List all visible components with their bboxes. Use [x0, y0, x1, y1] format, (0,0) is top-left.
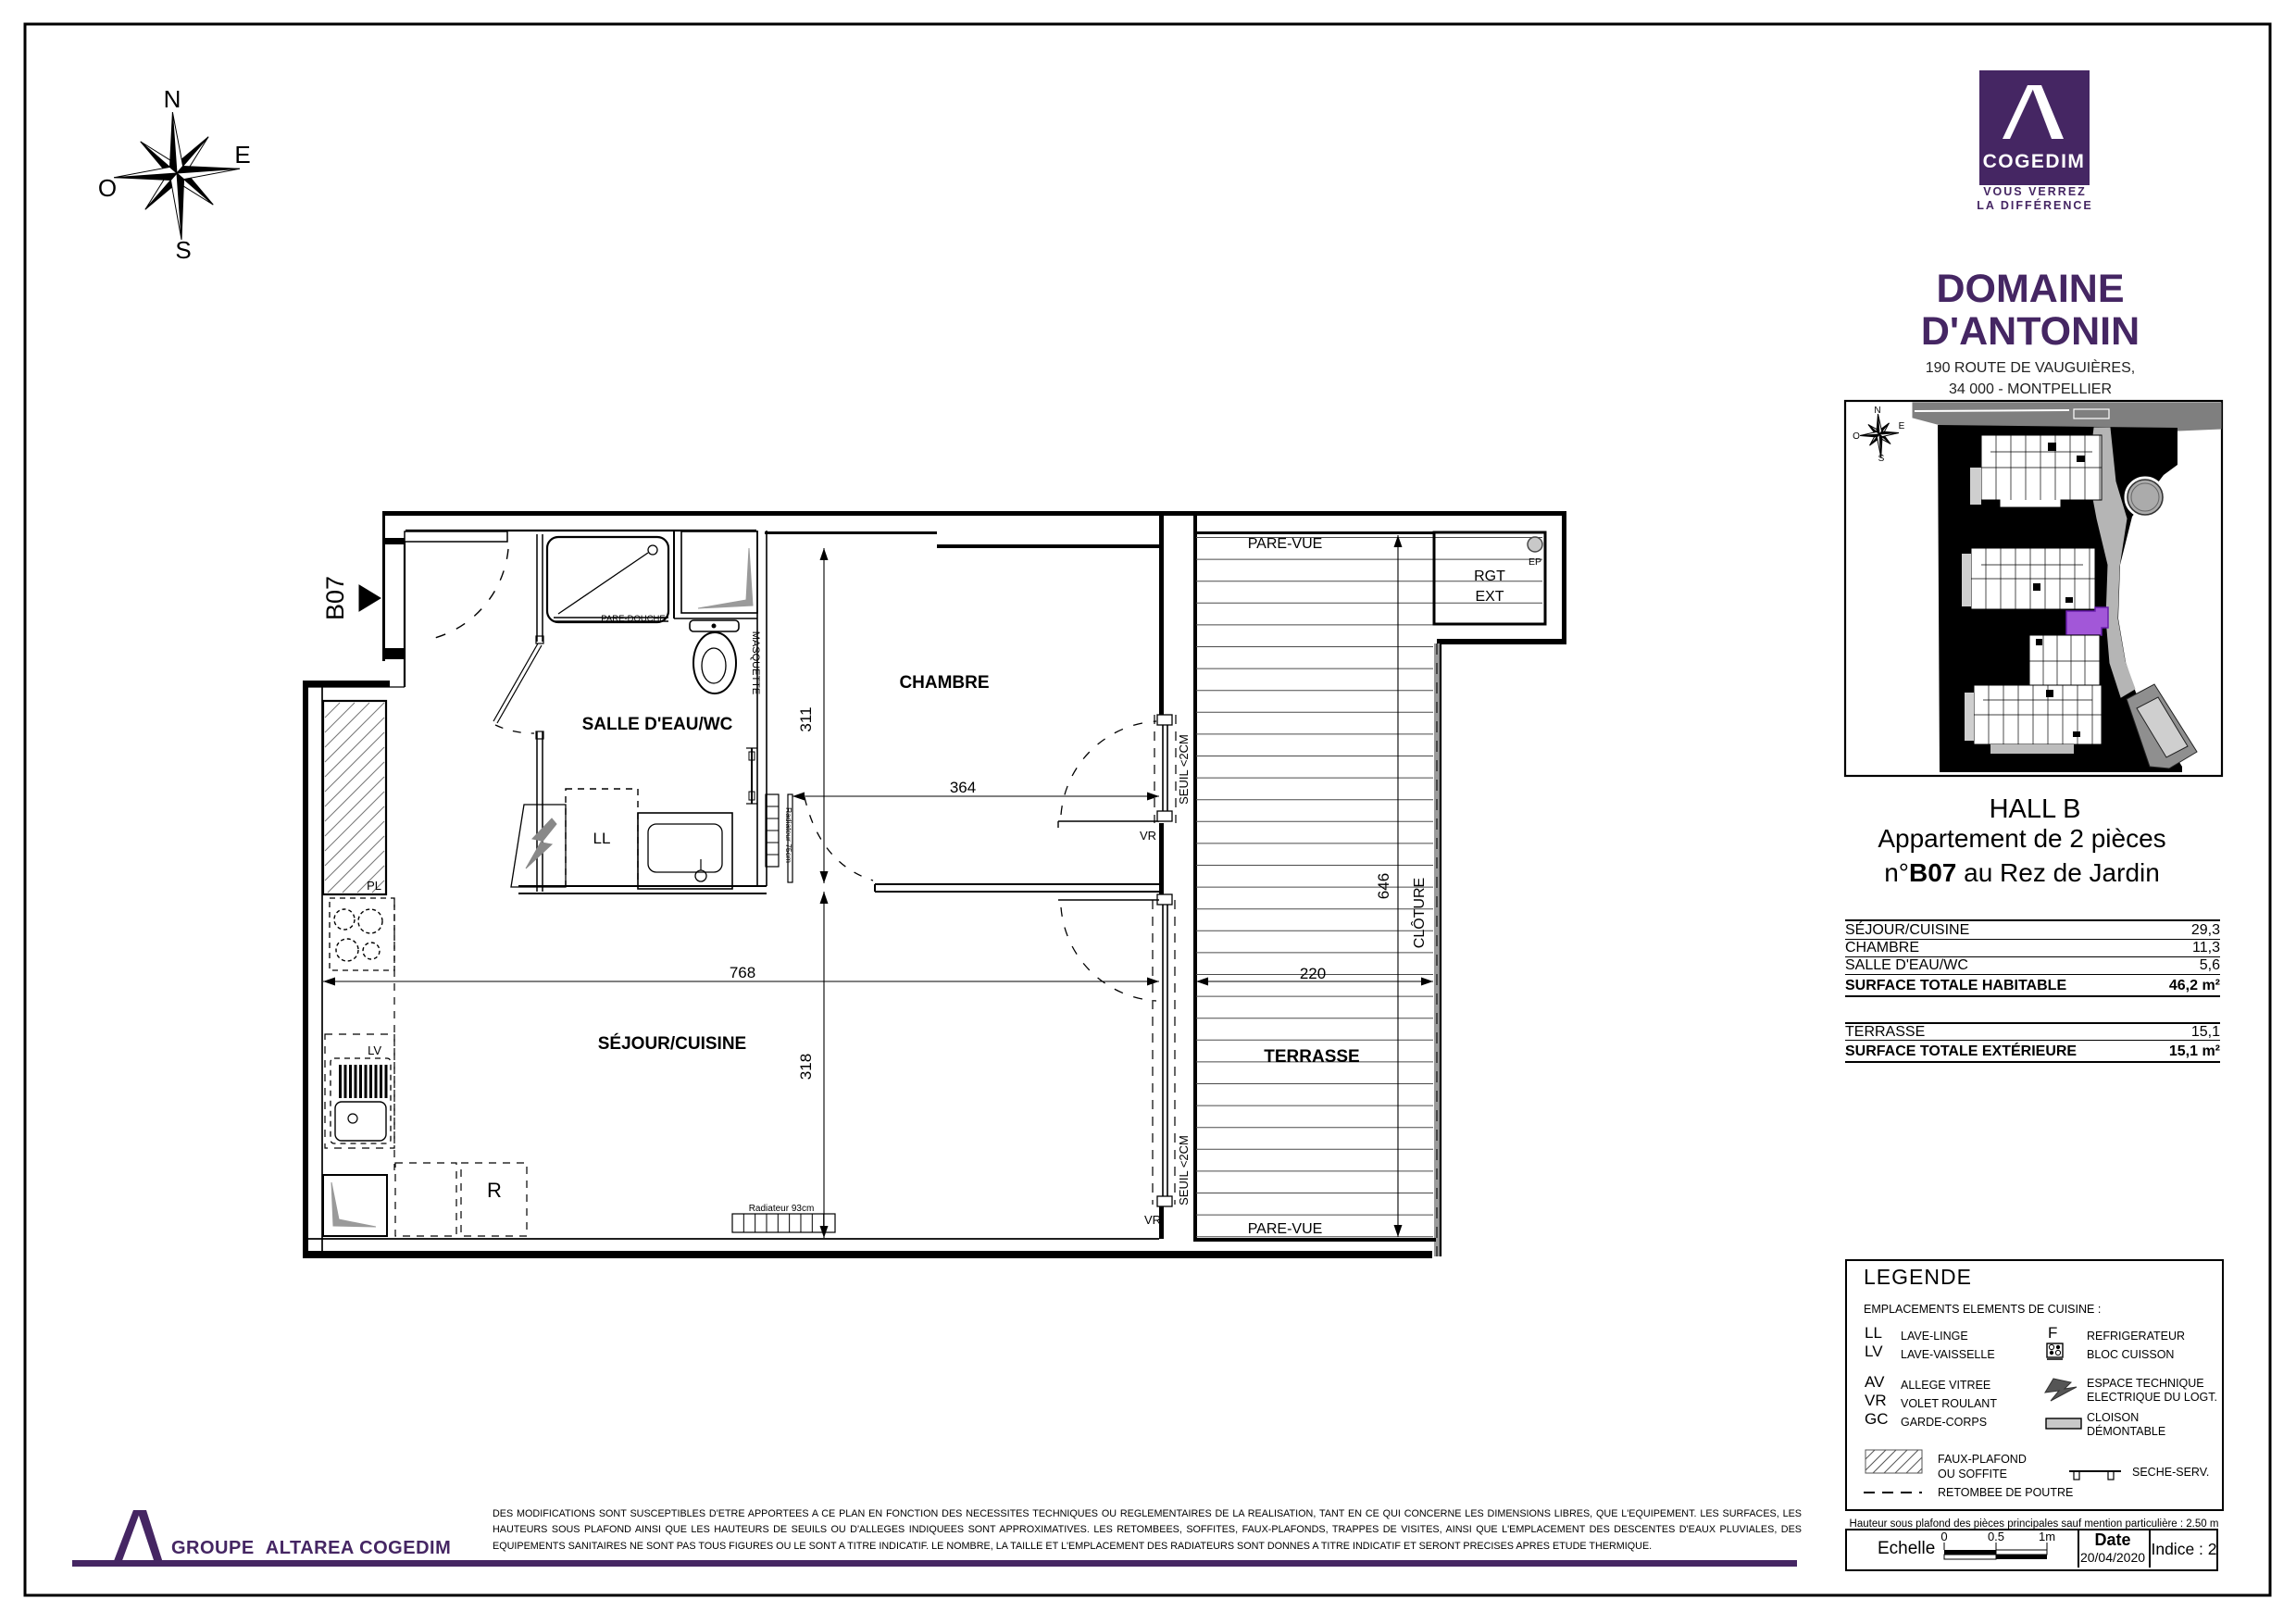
svg-text:364: 364	[950, 779, 976, 796]
svg-text:0.5: 0.5	[1988, 1530, 2004, 1543]
svg-text:SÉJOUR/CUISINE: SÉJOUR/CUISINE	[598, 1033, 746, 1054]
svg-text:MASQUETTE: MASQUETTE	[750, 631, 761, 694]
svg-text:B07: B07	[321, 576, 349, 620]
svg-text:Radiateur 75cm: Radiateur 75cm	[784, 807, 793, 863]
svg-text:PARE-VUE: PARE-VUE	[1248, 536, 1323, 552]
svg-text:Radiateur 93cm: Radiateur 93cm	[749, 1204, 815, 1214]
svg-text:S: S	[175, 236, 191, 264]
svg-text:CLÔTURE: CLÔTURE	[1410, 878, 1428, 948]
svg-text:646: 646	[1375, 873, 1392, 899]
svg-text:CHAMBRE: CHAMBRE	[899, 673, 989, 693]
svg-text:PARE-VUE: PARE-VUE	[1248, 1221, 1323, 1237]
svg-text:S: S	[1878, 454, 1885, 464]
svg-text:EP: EP	[1529, 556, 1541, 568]
svg-text:SEUIL <2CM: SEUIL <2CM	[1177, 734, 1191, 805]
svg-text:220: 220	[1300, 965, 1326, 982]
svg-text:N: N	[164, 85, 181, 113]
svg-text:LL: LL	[593, 830, 611, 847]
svg-text:O: O	[1853, 431, 1860, 442]
svg-text:R: R	[487, 1179, 502, 1202]
svg-text:LV: LV	[368, 1043, 381, 1057]
svg-text:PARE-DOUCHE: PARE-DOUCHE	[601, 614, 666, 624]
svg-text:VR: VR	[1144, 1213, 1161, 1227]
svg-text:SALLE D'EAU/WC: SALLE D'EAU/WC	[582, 715, 733, 734]
svg-text:EXT: EXT	[1475, 589, 1504, 605]
svg-text:O: O	[98, 174, 117, 202]
svg-text:318: 318	[797, 1054, 815, 1080]
svg-text:TERRASSE: TERRASSE	[1264, 1047, 1359, 1067]
svg-text:COGEDIM: COGEDIM	[1983, 151, 2086, 172]
svg-text:E: E	[234, 141, 250, 169]
svg-text:PL: PL	[367, 879, 381, 893]
svg-text:RGT: RGT	[1474, 568, 1505, 584]
svg-text:1m: 1m	[2039, 1530, 2055, 1543]
svg-text:768: 768	[730, 964, 755, 981]
svg-text:0: 0	[1940, 1530, 1947, 1543]
svg-text:311: 311	[797, 706, 815, 731]
svg-text:N: N	[1874, 406, 1880, 416]
svg-text:SEUIL <2CM: SEUIL <2CM	[1177, 1135, 1191, 1206]
svg-text:E: E	[1899, 421, 1905, 431]
svg-text:GROUPE ALTAREA COGEDIM: GROUPE ALTAREA COGEDIM	[171, 1538, 451, 1558]
svg-text:VR: VR	[1140, 829, 1156, 843]
